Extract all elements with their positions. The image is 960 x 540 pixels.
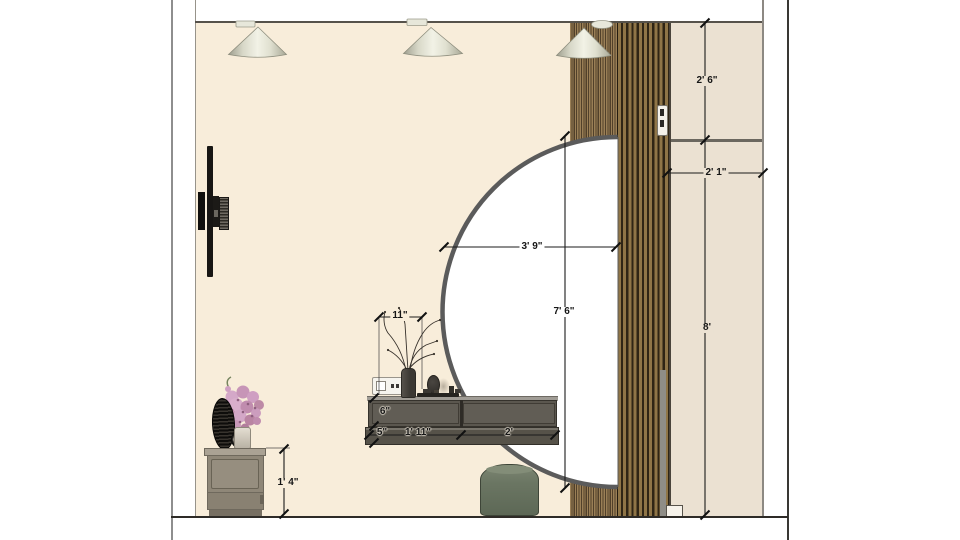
section-line-left (171, 0, 173, 540)
outlet-socket2 (396, 384, 399, 388)
floor-line (171, 516, 788, 519)
door-handle-slot2 (660, 120, 664, 127)
dim-label-column-width: 2' 1" (703, 168, 728, 178)
wall-edge-right (762, 0, 764, 516)
outlet-socket (391, 384, 394, 388)
dim-label-counter-lower: 5" (377, 428, 387, 438)
dim-label-counter-upper: 6" (380, 407, 390, 417)
ceiling-line (195, 21, 763, 23)
section-line-right (787, 0, 789, 540)
dim-label-door-height: 8' (701, 323, 713, 333)
pouf-top-highlight (486, 465, 533, 474)
vanity-tray (417, 393, 459, 398)
nightstand-top (204, 448, 266, 456)
tray-item-bottle (449, 386, 454, 394)
vanity-lower-tier-edge (366, 428, 558, 431)
outlet-switch (376, 381, 386, 391)
tray-item-small (434, 390, 439, 393)
door-top-line (667, 139, 762, 142)
dim-label-panel-above-door: 2' 6" (694, 76, 719, 86)
tv-back-vents (219, 197, 229, 230)
dim-label-drawer-right: 2' (505, 428, 513, 438)
wood-slat-panel-fine (570, 21, 617, 516)
nightstand-door-panel (211, 459, 259, 489)
dim-label-mirror-height: 7' 6" (551, 307, 576, 317)
wall-edge-left (195, 0, 196, 517)
tv-mount-hinge (214, 210, 218, 217)
slat-edge-shadow (660, 370, 666, 516)
dim-label-vase-width: 11" (390, 311, 409, 321)
dim-label-nightstand-height: 1' 4" (275, 478, 300, 488)
dim-label-mirror-radius: 3' 9" (519, 242, 544, 252)
nightstand-drawer (207, 492, 264, 510)
nightstand-handle (260, 495, 264, 504)
vanity-drawer-right (463, 403, 555, 425)
door-panel (667, 23, 762, 516)
dim-label-drawer-left: 1' 11" (405, 428, 431, 438)
elevation-drawing: 2' 6" 2' 1" 8' 3' 9" 7' 6" 11" 6" 5" 1' … (0, 0, 960, 540)
tray-item-box (423, 389, 431, 393)
door-handle-slot (660, 109, 664, 116)
tray-item-jar (455, 389, 461, 394)
vanity-drawer-divider (460, 400, 463, 427)
branch-vase (401, 368, 417, 398)
tv-mount-plate (198, 192, 205, 230)
flower-vase (234, 427, 251, 449)
